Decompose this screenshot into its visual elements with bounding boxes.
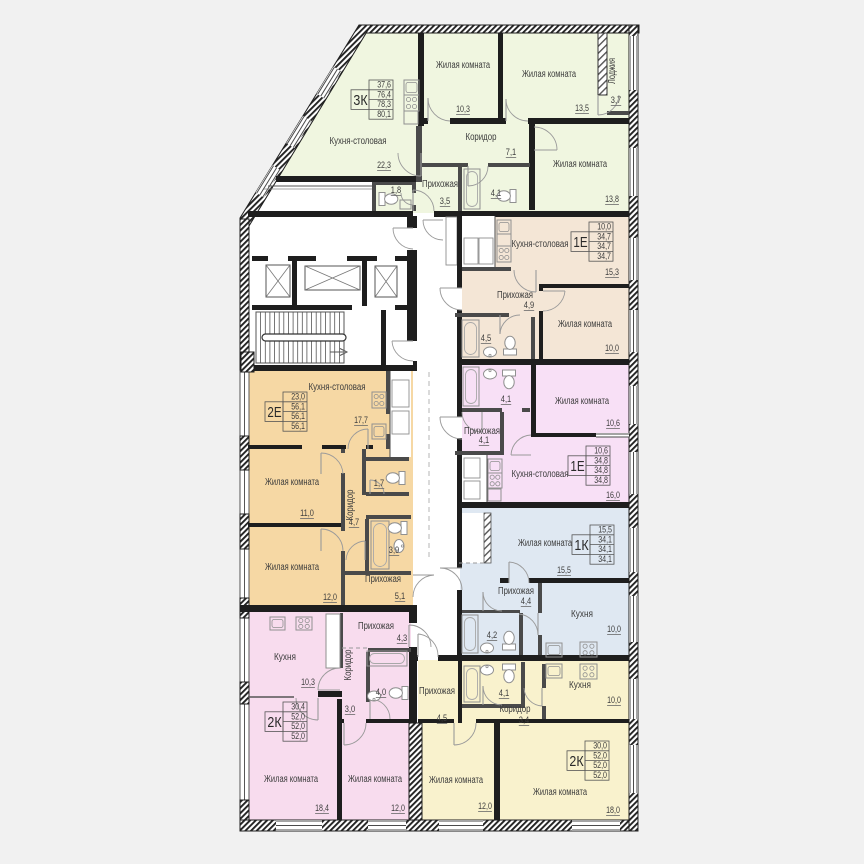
svg-text:16,0: 16,0 xyxy=(606,490,620,501)
svg-text:10,0: 10,0 xyxy=(605,343,619,354)
svg-text:Кухня: Кухня xyxy=(274,652,296,663)
svg-text:Жилая комната: Жилая комната xyxy=(533,787,587,798)
svg-text:12,0: 12,0 xyxy=(323,592,337,603)
svg-text:80,1: 80,1 xyxy=(377,109,391,120)
svg-text:Жилая комната: Жилая комната xyxy=(348,774,402,785)
svg-text:1,8: 1,8 xyxy=(391,185,401,196)
svg-text:18,0: 18,0 xyxy=(606,805,620,816)
svg-text:3К: 3К xyxy=(353,92,367,109)
svg-text:Коридор: Коридор xyxy=(343,649,354,680)
svg-text:17,7: 17,7 xyxy=(354,415,368,426)
svg-text:10,3: 10,3 xyxy=(301,677,315,688)
svg-text:3,5: 3,5 xyxy=(440,196,450,207)
svg-text:Жилая комната: Жилая комната xyxy=(558,319,612,330)
svg-text:56,1: 56,1 xyxy=(291,421,305,432)
svg-text:Коридор: Коридор xyxy=(466,132,497,143)
svg-text:34,1: 34,1 xyxy=(598,554,612,565)
svg-text:3,0: 3,0 xyxy=(345,704,355,714)
svg-text:10,6: 10,6 xyxy=(606,418,620,429)
svg-text:4,9: 4,9 xyxy=(524,300,534,311)
svg-text:Жилая комната: Жилая комната xyxy=(429,775,483,786)
svg-text:Прихожая: Прихожая xyxy=(358,621,394,632)
svg-text:3,7: 3,7 xyxy=(611,95,621,106)
svg-text:34,7: 34,7 xyxy=(597,251,611,262)
svg-text:2К: 2К xyxy=(267,714,281,731)
svg-text:52,0: 52,0 xyxy=(291,731,305,742)
svg-text:Кухня-столовая: Кухня-столовая xyxy=(512,239,569,250)
svg-text:Кухня-столовая: Кухня-столовая xyxy=(309,382,366,393)
svg-text:4,5: 4,5 xyxy=(437,713,447,724)
svg-text:Лоджия: Лоджия xyxy=(607,58,618,84)
svg-text:1Е: 1Е xyxy=(573,234,587,251)
svg-text:Прихожая: Прихожая xyxy=(419,686,455,697)
svg-text:Кухня: Кухня xyxy=(571,609,593,620)
svg-text:4,1: 4,1 xyxy=(479,435,489,446)
svg-text:4,3: 4,3 xyxy=(397,633,407,644)
svg-text:1,7: 1,7 xyxy=(374,478,384,488)
svg-text:11,0: 11,0 xyxy=(300,508,314,519)
svg-text:Жилая комната: Жилая комната xyxy=(522,69,576,80)
svg-text:4,1: 4,1 xyxy=(499,688,509,699)
svg-text:Жилая комната: Жилая комната xyxy=(265,477,319,488)
svg-text:Жилая комната: Жилая комната xyxy=(555,396,609,407)
svg-text:4,7: 4,7 xyxy=(349,517,359,527)
svg-text:Прихожая: Прихожая xyxy=(422,179,458,190)
svg-text:4,0: 4,0 xyxy=(376,687,386,698)
svg-text:Кухня: Кухня xyxy=(569,680,591,691)
svg-text:4,5: 4,5 xyxy=(481,333,491,344)
svg-text:Жилая комната: Жилая комната xyxy=(553,159,607,170)
svg-text:4,4: 4,4 xyxy=(521,596,531,607)
svg-text:Коридор: Коридор xyxy=(500,704,531,715)
svg-text:10,3: 10,3 xyxy=(456,104,470,115)
svg-text:Коридор: Коридор xyxy=(345,489,356,520)
svg-text:10,0: 10,0 xyxy=(607,695,621,706)
svg-text:13,5: 13,5 xyxy=(575,103,589,114)
svg-text:2К: 2К xyxy=(569,753,583,770)
svg-text:15,5: 15,5 xyxy=(557,565,571,576)
svg-text:Жилая комната: Жилая комната xyxy=(265,562,319,573)
svg-text:Жилая комната: Жилая комната xyxy=(264,774,318,785)
svg-text:5,1: 5,1 xyxy=(395,591,405,602)
svg-text:4,2: 4,2 xyxy=(487,630,497,641)
svg-text:4,1: 4,1 xyxy=(501,394,511,405)
svg-text:7,1: 7,1 xyxy=(506,147,516,158)
svg-text:15,3: 15,3 xyxy=(605,267,619,278)
svg-text:13,8: 13,8 xyxy=(605,194,619,205)
svg-text:12,0: 12,0 xyxy=(478,801,492,812)
svg-text:34,8: 34,8 xyxy=(594,475,608,486)
svg-text:18,4: 18,4 xyxy=(315,803,329,814)
svg-text:2Е: 2Е xyxy=(267,404,281,421)
svg-text:Прихожая: Прихожая xyxy=(365,574,401,585)
svg-text:Кухня-столовая: Кухня-столовая xyxy=(512,469,569,480)
svg-text:10,0: 10,0 xyxy=(607,624,621,635)
svg-text:22,3: 22,3 xyxy=(377,160,391,171)
svg-text:1К: 1К xyxy=(574,537,588,554)
svg-text:1Е: 1Е xyxy=(570,458,584,475)
svg-text:3,9: 3,9 xyxy=(389,545,399,556)
svg-text:52,0: 52,0 xyxy=(593,770,607,781)
svg-text:4,1: 4,1 xyxy=(491,188,501,199)
svg-text:3,4: 3,4 xyxy=(519,715,529,726)
svg-text:Жилая комната: Жилая комната xyxy=(436,60,490,71)
svg-text:12,0: 12,0 xyxy=(391,803,405,814)
svg-text:Кухня-столовая: Кухня-столовая xyxy=(330,136,387,147)
svg-text:Жилая комната: Жилая комната xyxy=(518,538,572,549)
